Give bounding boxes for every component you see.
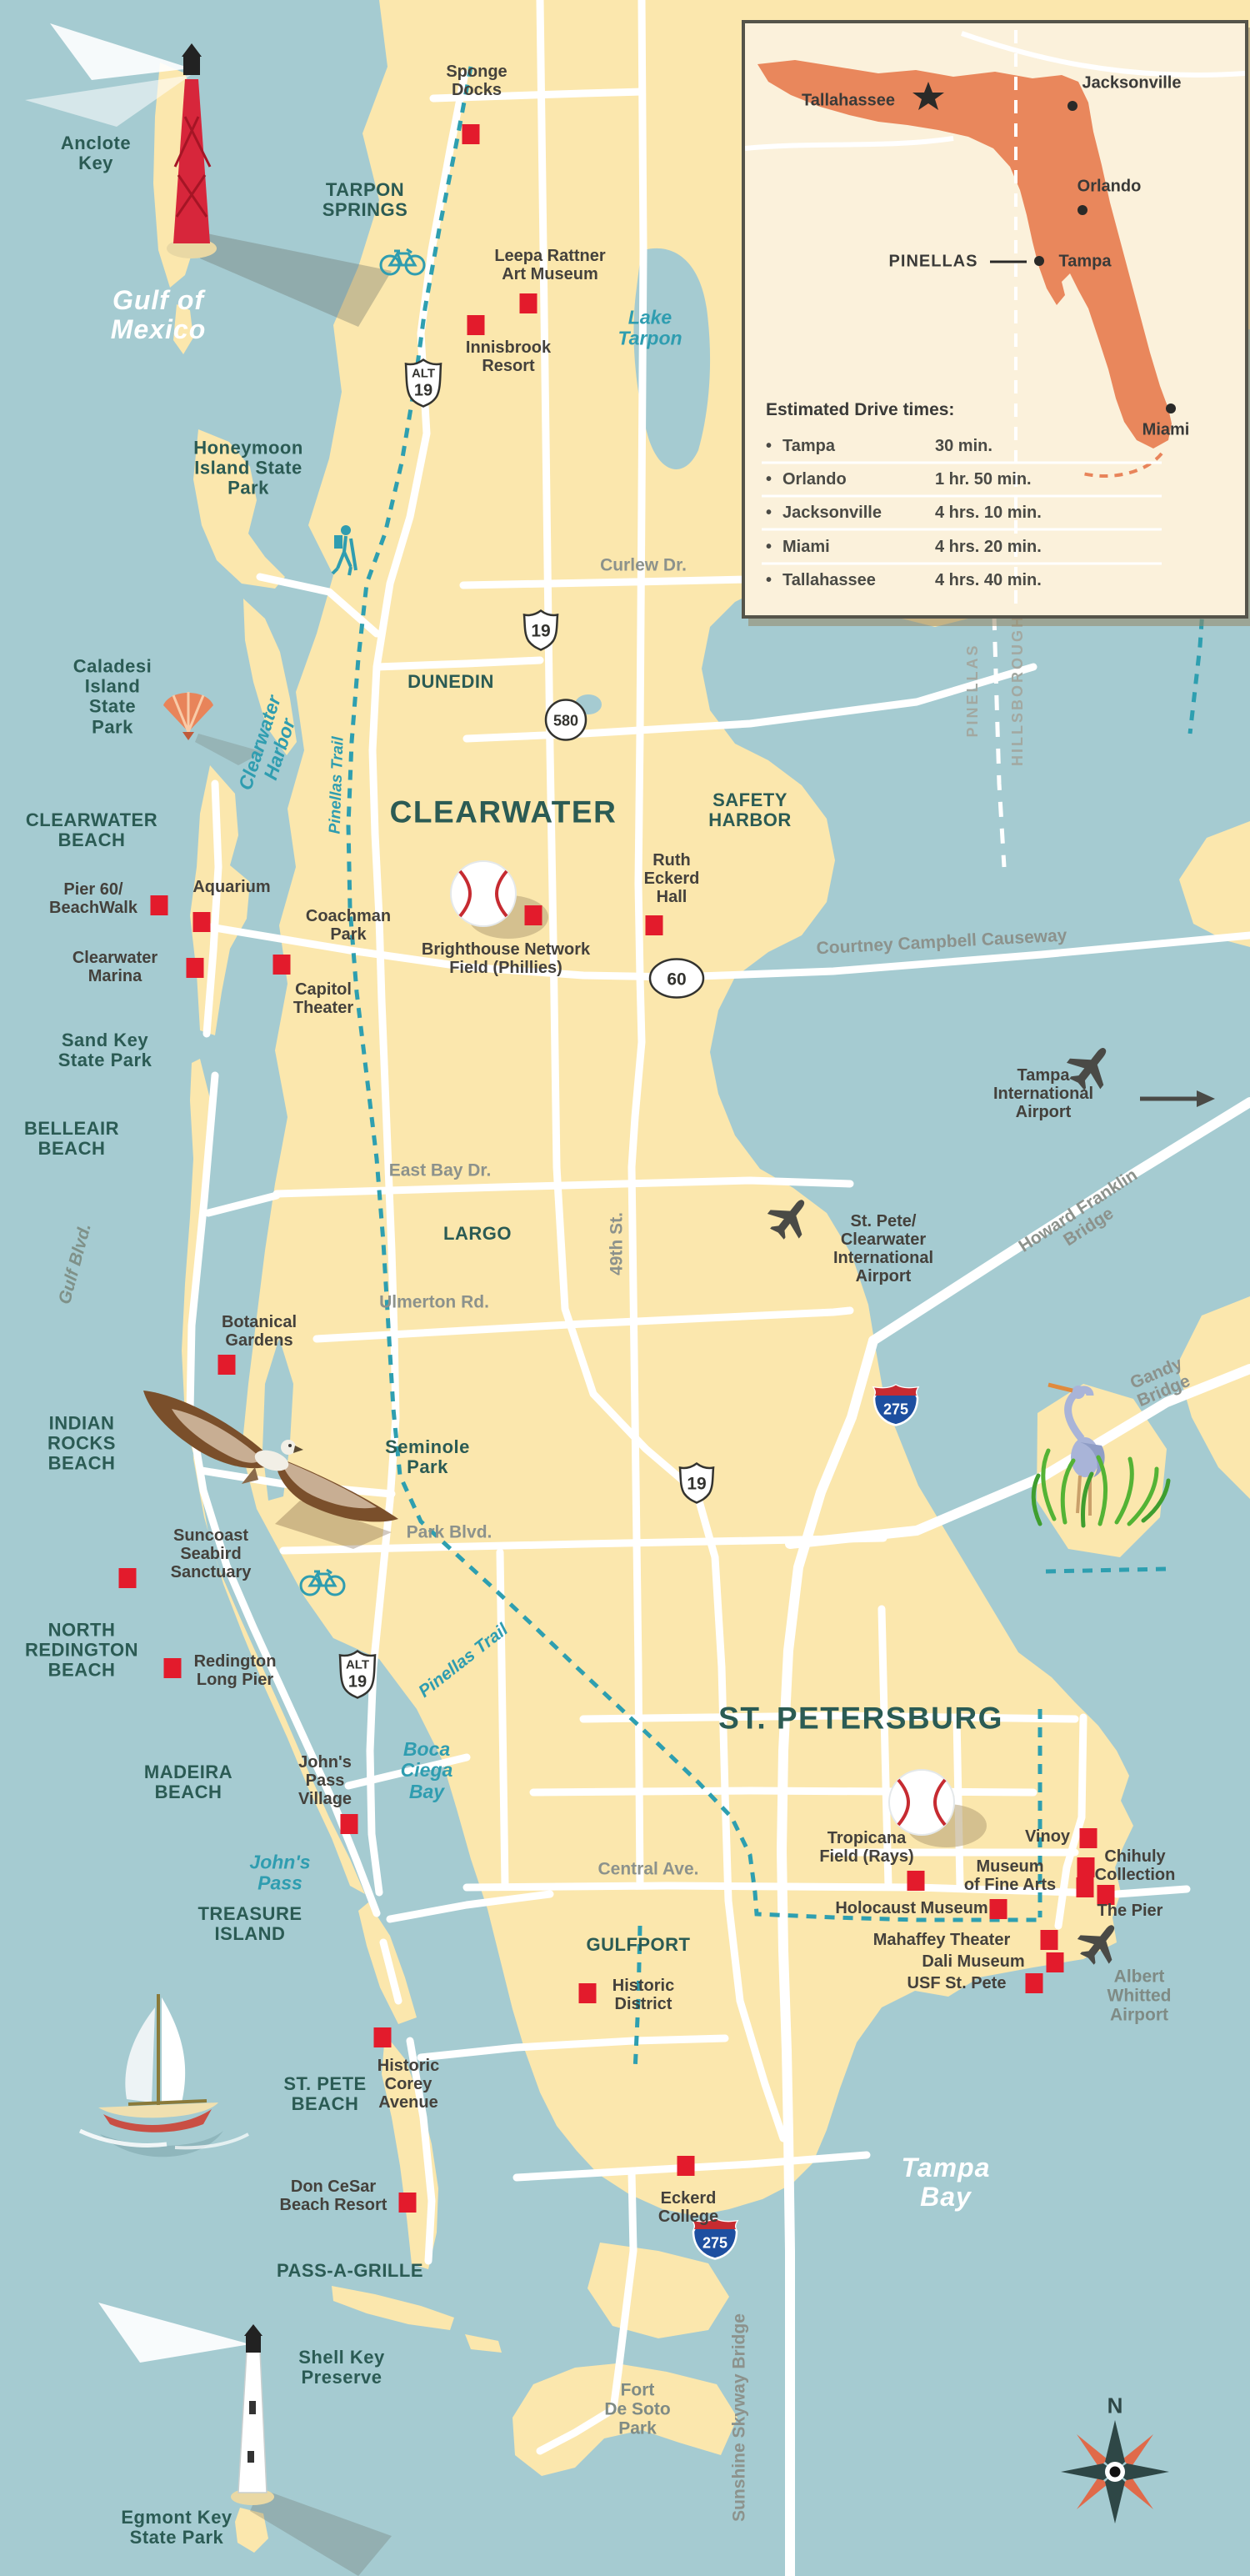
bullet-icon: •	[766, 571, 772, 590]
marker-mahaffey	[1041, 1930, 1058, 1950]
svg-text:19: 19	[414, 382, 432, 400]
drive-time-row: • Jacksonville 4 hrs. 10 min.	[745, 504, 1245, 529]
bullet-icon: •	[766, 538, 772, 557]
marker-clearwater-marina	[187, 958, 204, 978]
drive-time: 4 hrs. 40 min.	[935, 571, 1042, 590]
shield-us19-south: 19	[677, 1461, 717, 1509]
shield-sr580: 580	[543, 698, 588, 747]
shield-i275-north: 275	[871, 1383, 921, 1432]
dot-jacksonville	[1067, 101, 1077, 111]
drive-time: 30 min.	[935, 437, 992, 456]
drive-destination: Orlando	[782, 470, 847, 489]
marker-mofa	[1077, 1877, 1094, 1897]
dot-tampa	[1034, 256, 1044, 266]
shield-alt19-north: ALT 19	[402, 358, 444, 413]
marker-historic-corey	[374, 2027, 392, 2047]
inset-label-tampa: Tampa	[1059, 253, 1112, 272]
marker-capitol-theater	[273, 955, 291, 975]
marker-sponge-docks	[462, 124, 480, 144]
drive-time-row: • Tampa 30 min.	[745, 437, 1245, 462]
marker-ruth-eckerd	[646, 915, 663, 935]
marker-brighthouse	[525, 905, 542, 925]
svg-text:19: 19	[531, 622, 550, 641]
marker-redington-pier	[164, 1658, 182, 1678]
svg-text:19: 19	[348, 1673, 367, 1691]
shield-alt19-south: ALT 19	[337, 1649, 378, 1705]
marker-vinoy	[1080, 1828, 1097, 1848]
svg-text:60: 60	[667, 970, 686, 990]
inset-label-jacksonville: Jacksonville	[1082, 74, 1182, 93]
marker-johns-pass-village	[341, 1814, 358, 1834]
marker-holocaust	[990, 1899, 1007, 1919]
marker-historic-district	[579, 1983, 597, 2003]
marker-usf	[1026, 1973, 1043, 1993]
drive-destination: Jacksonville	[782, 504, 882, 523]
bullet-icon: •	[766, 437, 772, 456]
dot-miami	[1166, 403, 1176, 413]
bullet-icon: •	[766, 470, 772, 489]
drive-time: 1 hr. 50 min.	[935, 470, 1032, 489]
dot-orlando	[1077, 205, 1087, 215]
drive-destination: Tampa	[782, 437, 835, 456]
marker-dali	[1047, 1952, 1064, 1972]
inset-label-pinellas: PINELLAS	[889, 253, 978, 272]
marker-leepa-rattner	[520, 293, 537, 313]
svg-text:275: 275	[883, 1401, 908, 1418]
svg-text:580: 580	[553, 713, 578, 729]
pinellas-county-map: 19 19 ALT 19 ALT 19 580 60 275 275 Anclo…	[0, 0, 1250, 2576]
svg-text:275: 275	[702, 2235, 727, 2252]
shield-sr60: 60	[647, 957, 706, 1005]
drive-time-row: • Miami 4 hrs. 20 min.	[745, 538, 1245, 563]
drive-destination: Miami	[782, 538, 830, 557]
bullet-icon: •	[766, 504, 772, 523]
svg-text:ALT: ALT	[346, 1658, 369, 1672]
inset-label-tallahassee: Tallahassee	[802, 92, 895, 111]
drive-destination: Tallahassee	[782, 571, 876, 590]
drive-time-row: • Tallahassee 4 hrs. 40 min.	[745, 571, 1245, 596]
marker-chihuly	[1077, 1857, 1095, 1877]
marker-the-pier	[1097, 1885, 1115, 1905]
marker-innisbrook	[467, 315, 485, 335]
drive-time-row: • Orlando 1 hr. 50 min.	[745, 470, 1245, 495]
shield-i275-south: 275	[690, 2217, 740, 2266]
marker-aquarium	[193, 912, 211, 932]
svg-text:ALT: ALT	[412, 367, 435, 381]
marker-suncoast-sanctuary	[119, 1568, 137, 1588]
drive-times-title: Estimated Drive times:	[766, 400, 954, 420]
inset-label-orlando: Orlando	[1077, 178, 1142, 197]
marker-eckerd-college	[677, 2156, 695, 2176]
drive-time: 4 hrs. 10 min.	[935, 504, 1042, 523]
florida-inset: Tallahassee Jacksonville Orlando PINELLA…	[742, 20, 1248, 619]
drive-time: 4 hrs. 20 min.	[935, 538, 1042, 557]
marker-pier60	[151, 895, 168, 915]
marker-tropicana	[907, 1871, 925, 1891]
marker-don-cesar	[399, 2193, 417, 2213]
shield-us19-north: 19	[521, 609, 561, 656]
marker-botanical-gardens	[218, 1355, 236, 1375]
svg-text:19: 19	[687, 1475, 706, 1494]
